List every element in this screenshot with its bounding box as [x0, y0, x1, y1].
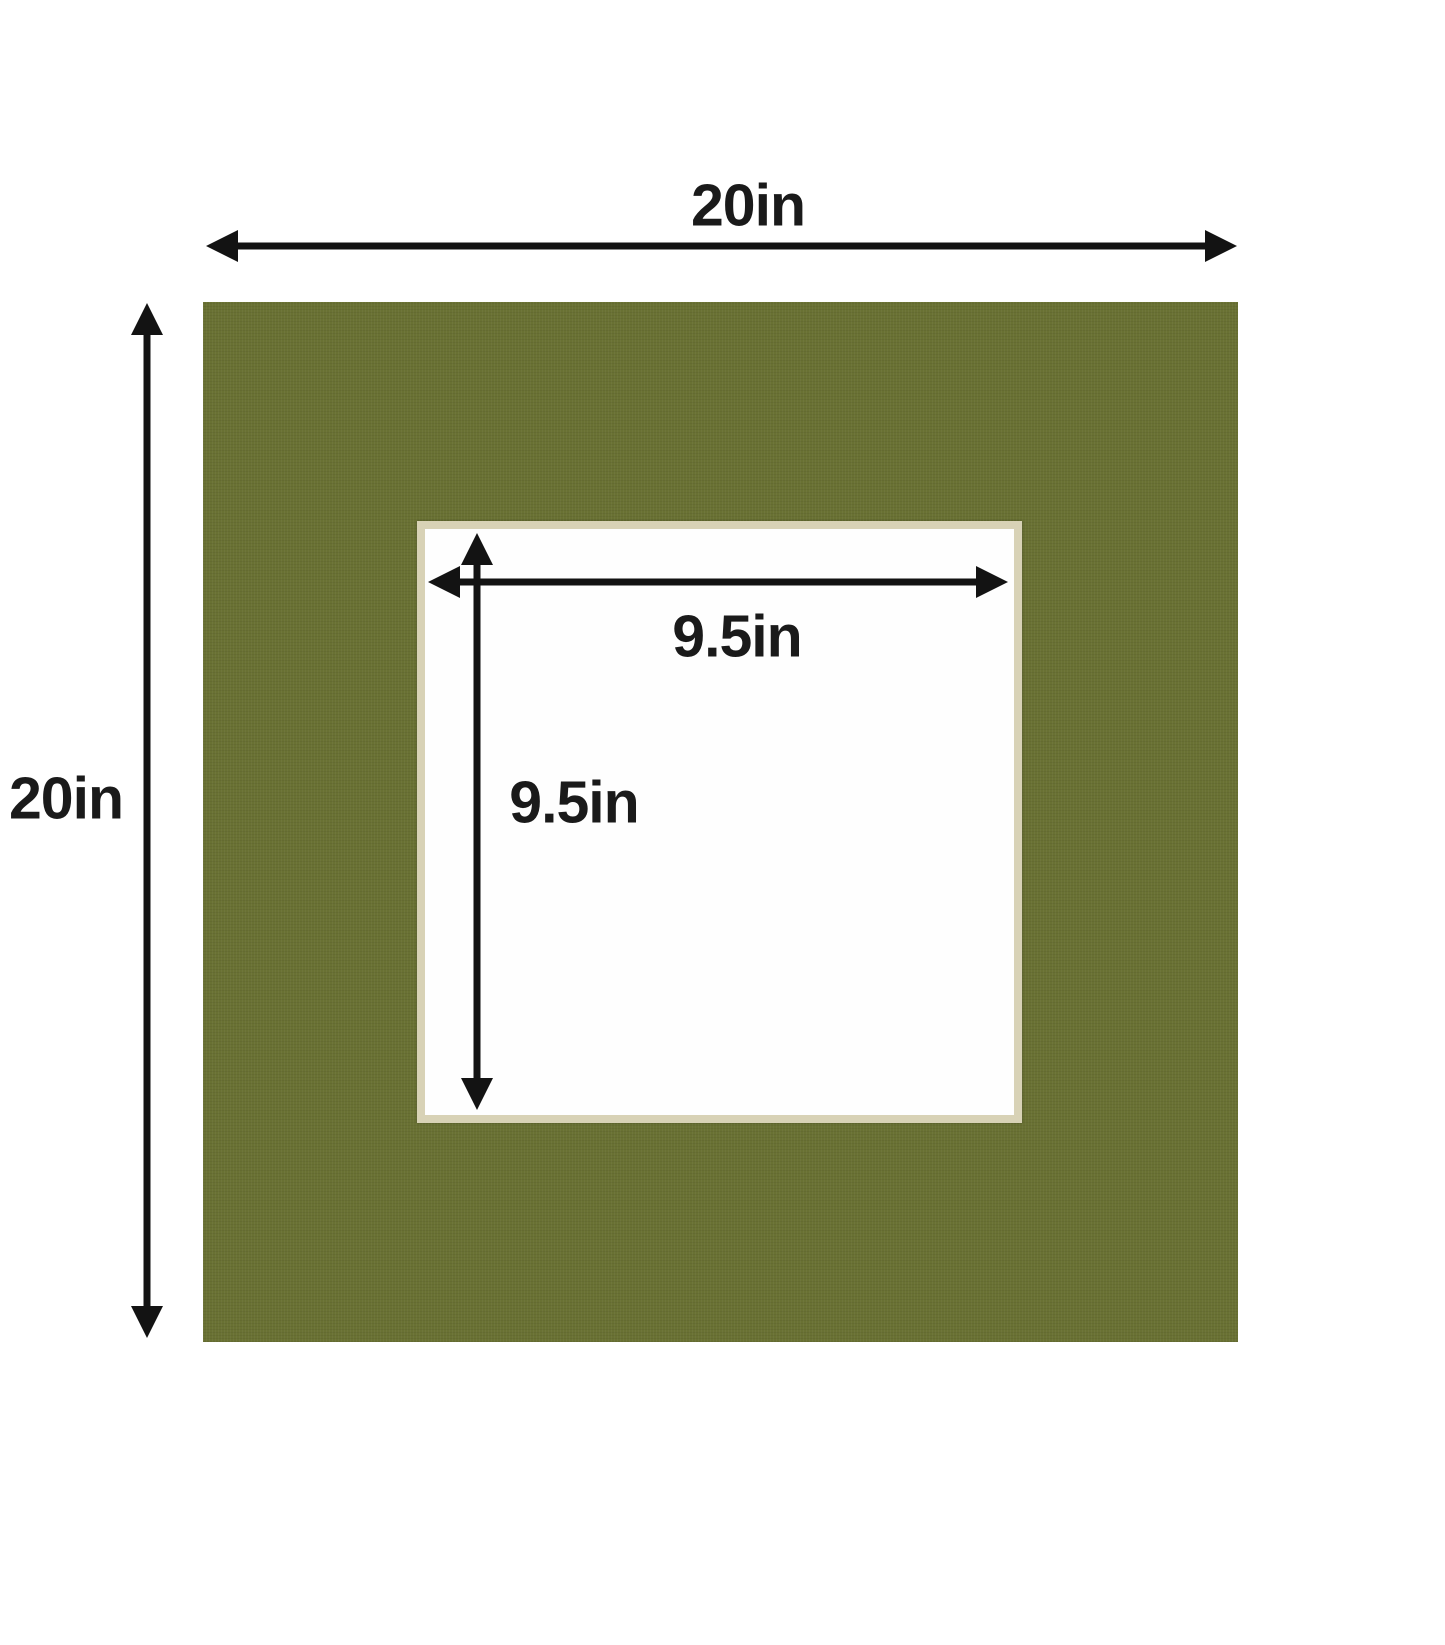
- outer-height-label: 20in: [9, 770, 123, 829]
- outer-height-arrow: [131, 303, 163, 1338]
- window-width-label: 9.5in: [672, 608, 801, 667]
- outer-width-label: 20in: [691, 177, 805, 236]
- mat-dimension-diagram: 20in 20in 9.5in 9.5in: [0, 0, 1445, 1645]
- window-height-label: 9.5in: [509, 774, 638, 833]
